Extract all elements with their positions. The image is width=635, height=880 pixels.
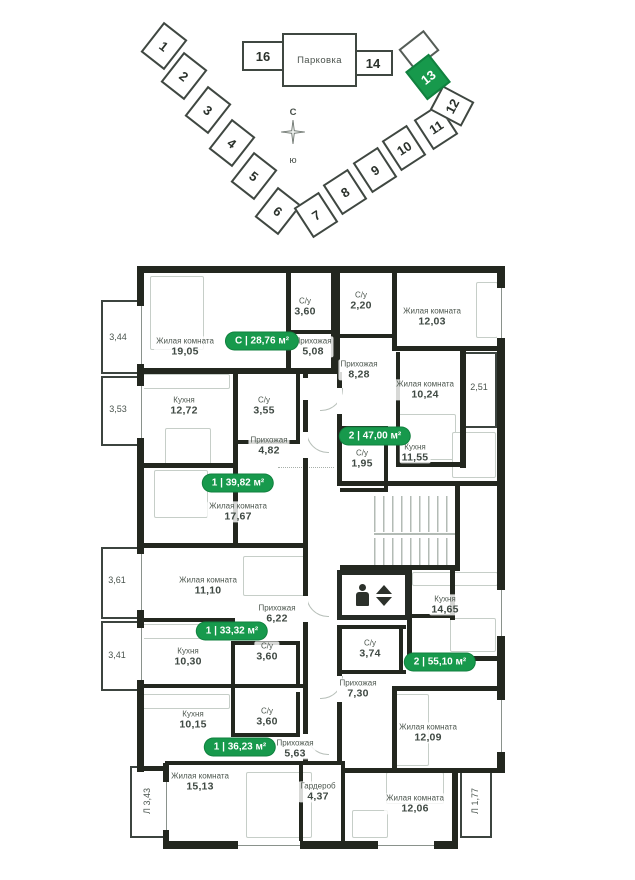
room-label: Жилая комната19,05 <box>154 336 216 357</box>
room-label: Прихожая4,82 <box>248 435 289 456</box>
balcony-label: 3,53 <box>109 404 127 414</box>
room-label: Жилая комната12,06 <box>384 793 446 814</box>
balcony-label: 3,44 <box>109 332 127 342</box>
wall <box>340 488 388 492</box>
desk <box>352 810 388 838</box>
wall <box>399 625 403 674</box>
window <box>137 628 144 680</box>
window <box>137 306 144 364</box>
stairs <box>374 538 456 566</box>
bed <box>154 470 208 518</box>
site-building-14[interactable]: 14 <box>353 50 393 76</box>
window <box>497 700 505 752</box>
window <box>497 288 505 338</box>
room-label: Прихожая6,22 <box>256 603 297 624</box>
window <box>378 841 434 849</box>
room-label: С/у3,60 <box>254 641 279 662</box>
room-label: Прихожая5,08 <box>292 336 333 357</box>
room-label: Жилая комната12,09 <box>397 722 459 743</box>
room-label: Кухня14,65 <box>429 594 460 615</box>
room-label: Жилая комната10,24 <box>394 379 456 400</box>
window <box>137 386 144 438</box>
room-label: Кухня12,72 <box>168 395 199 416</box>
wall <box>286 266 291 372</box>
person-icon <box>356 584 369 606</box>
wall <box>340 625 406 629</box>
floorplan-page: 1 2 3 4 5 6 7 8 9 10 11 12 13 14 16 Парк… <box>0 0 635 880</box>
wall <box>299 765 303 847</box>
room-label: Кухня10,30 <box>172 646 203 667</box>
door-arc <box>306 430 329 453</box>
stairs <box>374 496 456 532</box>
dining-table <box>165 428 211 466</box>
wall <box>137 543 308 548</box>
window <box>238 841 300 849</box>
balcony-label: 3,61 <box>108 575 126 585</box>
wall <box>341 765 345 847</box>
room-label: Кухня10,15 <box>177 709 208 730</box>
wall <box>165 761 307 765</box>
desk <box>476 282 498 338</box>
room-label: Прихожая8,28 <box>338 359 379 380</box>
compass-star-icon <box>280 119 306 145</box>
balcony-label: 3,41 <box>108 650 126 660</box>
loggia-label: Л 1,77 <box>470 788 480 814</box>
room-label: Прихожая5,63 <box>274 738 315 759</box>
wall <box>137 463 237 468</box>
compass-north-label: С <box>286 102 300 120</box>
wall <box>137 266 505 273</box>
compass-south-label: ю <box>286 150 300 168</box>
room-label: С/у2,20 <box>348 290 373 311</box>
window <box>163 782 169 830</box>
parking-block: Парковка <box>282 33 357 87</box>
site-building-16[interactable]: 16 <box>242 41 284 71</box>
room-label: С/у1,95 <box>349 448 374 469</box>
wall <box>137 766 167 771</box>
wall <box>340 670 406 674</box>
room-label: Жилая комната17,67 <box>207 501 269 522</box>
elevator <box>337 570 410 620</box>
wall <box>303 761 345 765</box>
wall <box>455 481 460 571</box>
parking-label: Парковка <box>297 55 342 66</box>
room-label: С/у3,55 <box>251 395 276 416</box>
wall <box>460 350 466 468</box>
apartment-badge[interactable]: 2 | 47,00 м² <box>340 428 410 445</box>
wall <box>296 692 300 737</box>
door-gap <box>303 596 308 622</box>
wall <box>303 372 308 765</box>
door-gap <box>303 378 308 400</box>
wall <box>392 346 502 351</box>
room-label: Жилая комната12,03 <box>401 306 463 327</box>
room-label: Прихожая7,30 <box>337 678 378 699</box>
kitchen-counter <box>142 694 230 709</box>
wall <box>337 334 397 338</box>
room-label: Гардероб4,37 <box>298 781 337 802</box>
wall <box>452 768 458 848</box>
bed <box>243 556 307 596</box>
apartment-badge[interactable]: 1 | 36,23 м² <box>205 739 275 756</box>
loggia-label: Л 3,43 <box>142 788 152 814</box>
wall <box>392 686 497 691</box>
room-label: С/у3,60 <box>254 706 279 727</box>
wall <box>231 733 299 737</box>
kitchen-counter <box>142 374 230 389</box>
wall <box>137 618 235 622</box>
room-label: Жилая комната15,13 <box>169 771 231 792</box>
wall <box>345 768 497 773</box>
apartment-badge[interactable]: 1 | 39,82 м² <box>203 475 273 492</box>
door-gap <box>303 432 308 458</box>
balcony-label: 2,51 <box>470 382 488 392</box>
kitchen-counter <box>412 572 498 586</box>
wall <box>231 684 299 688</box>
room-label: Кухня11,55 <box>400 442 431 463</box>
site-building-6[interactable]: 6 <box>254 187 301 235</box>
window <box>497 590 505 636</box>
elevator-updown-icon <box>376 585 392 606</box>
apartment-badge[interactable]: 2 | 55,10 м² <box>405 654 475 671</box>
door-arc <box>306 594 329 617</box>
dining-table <box>452 432 496 478</box>
door-gap <box>337 388 342 414</box>
wall <box>137 368 340 374</box>
stairs-landing <box>374 533 456 535</box>
dining-table <box>450 618 496 652</box>
wall <box>497 266 505 773</box>
wall <box>296 374 300 444</box>
room-label: С/у3,60 <box>292 296 317 317</box>
wall <box>340 481 500 486</box>
apartment-badge[interactable]: С | 28,76 м² <box>226 333 298 350</box>
window <box>137 554 144 610</box>
room-label: С/у3,74 <box>357 638 382 659</box>
wall <box>231 641 235 737</box>
room-label: Жилая комната11,10 <box>177 575 239 596</box>
wall <box>296 641 300 685</box>
apartment-badge[interactable]: 1 | 33,32 м² <box>197 623 267 640</box>
